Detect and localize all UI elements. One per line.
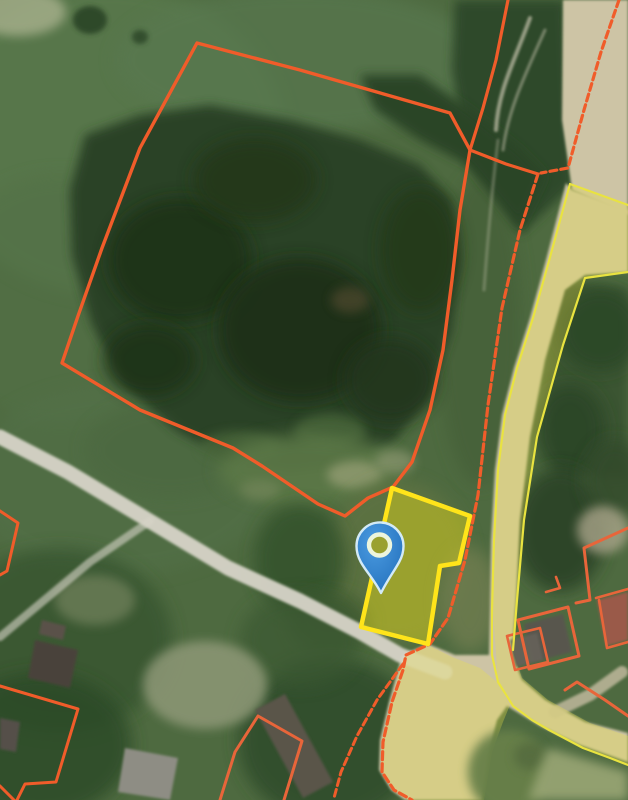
forest-brown-patch [331,287,369,313]
bare-ground-patch [240,480,280,500]
location-pin-hole [369,535,390,556]
bare-ground-patch [375,450,415,474]
forest-dark-core [104,324,196,396]
satellite-map [0,0,628,800]
bare-ground-patch [143,641,267,729]
forest-dark-core [193,138,317,222]
tree-clump [132,30,148,44]
main-road-top [562,0,628,215]
tree-clump [73,6,107,34]
forest-dark-core [344,338,436,422]
forest-dark-core [380,188,460,312]
map-viewport[interactable] [0,0,628,800]
